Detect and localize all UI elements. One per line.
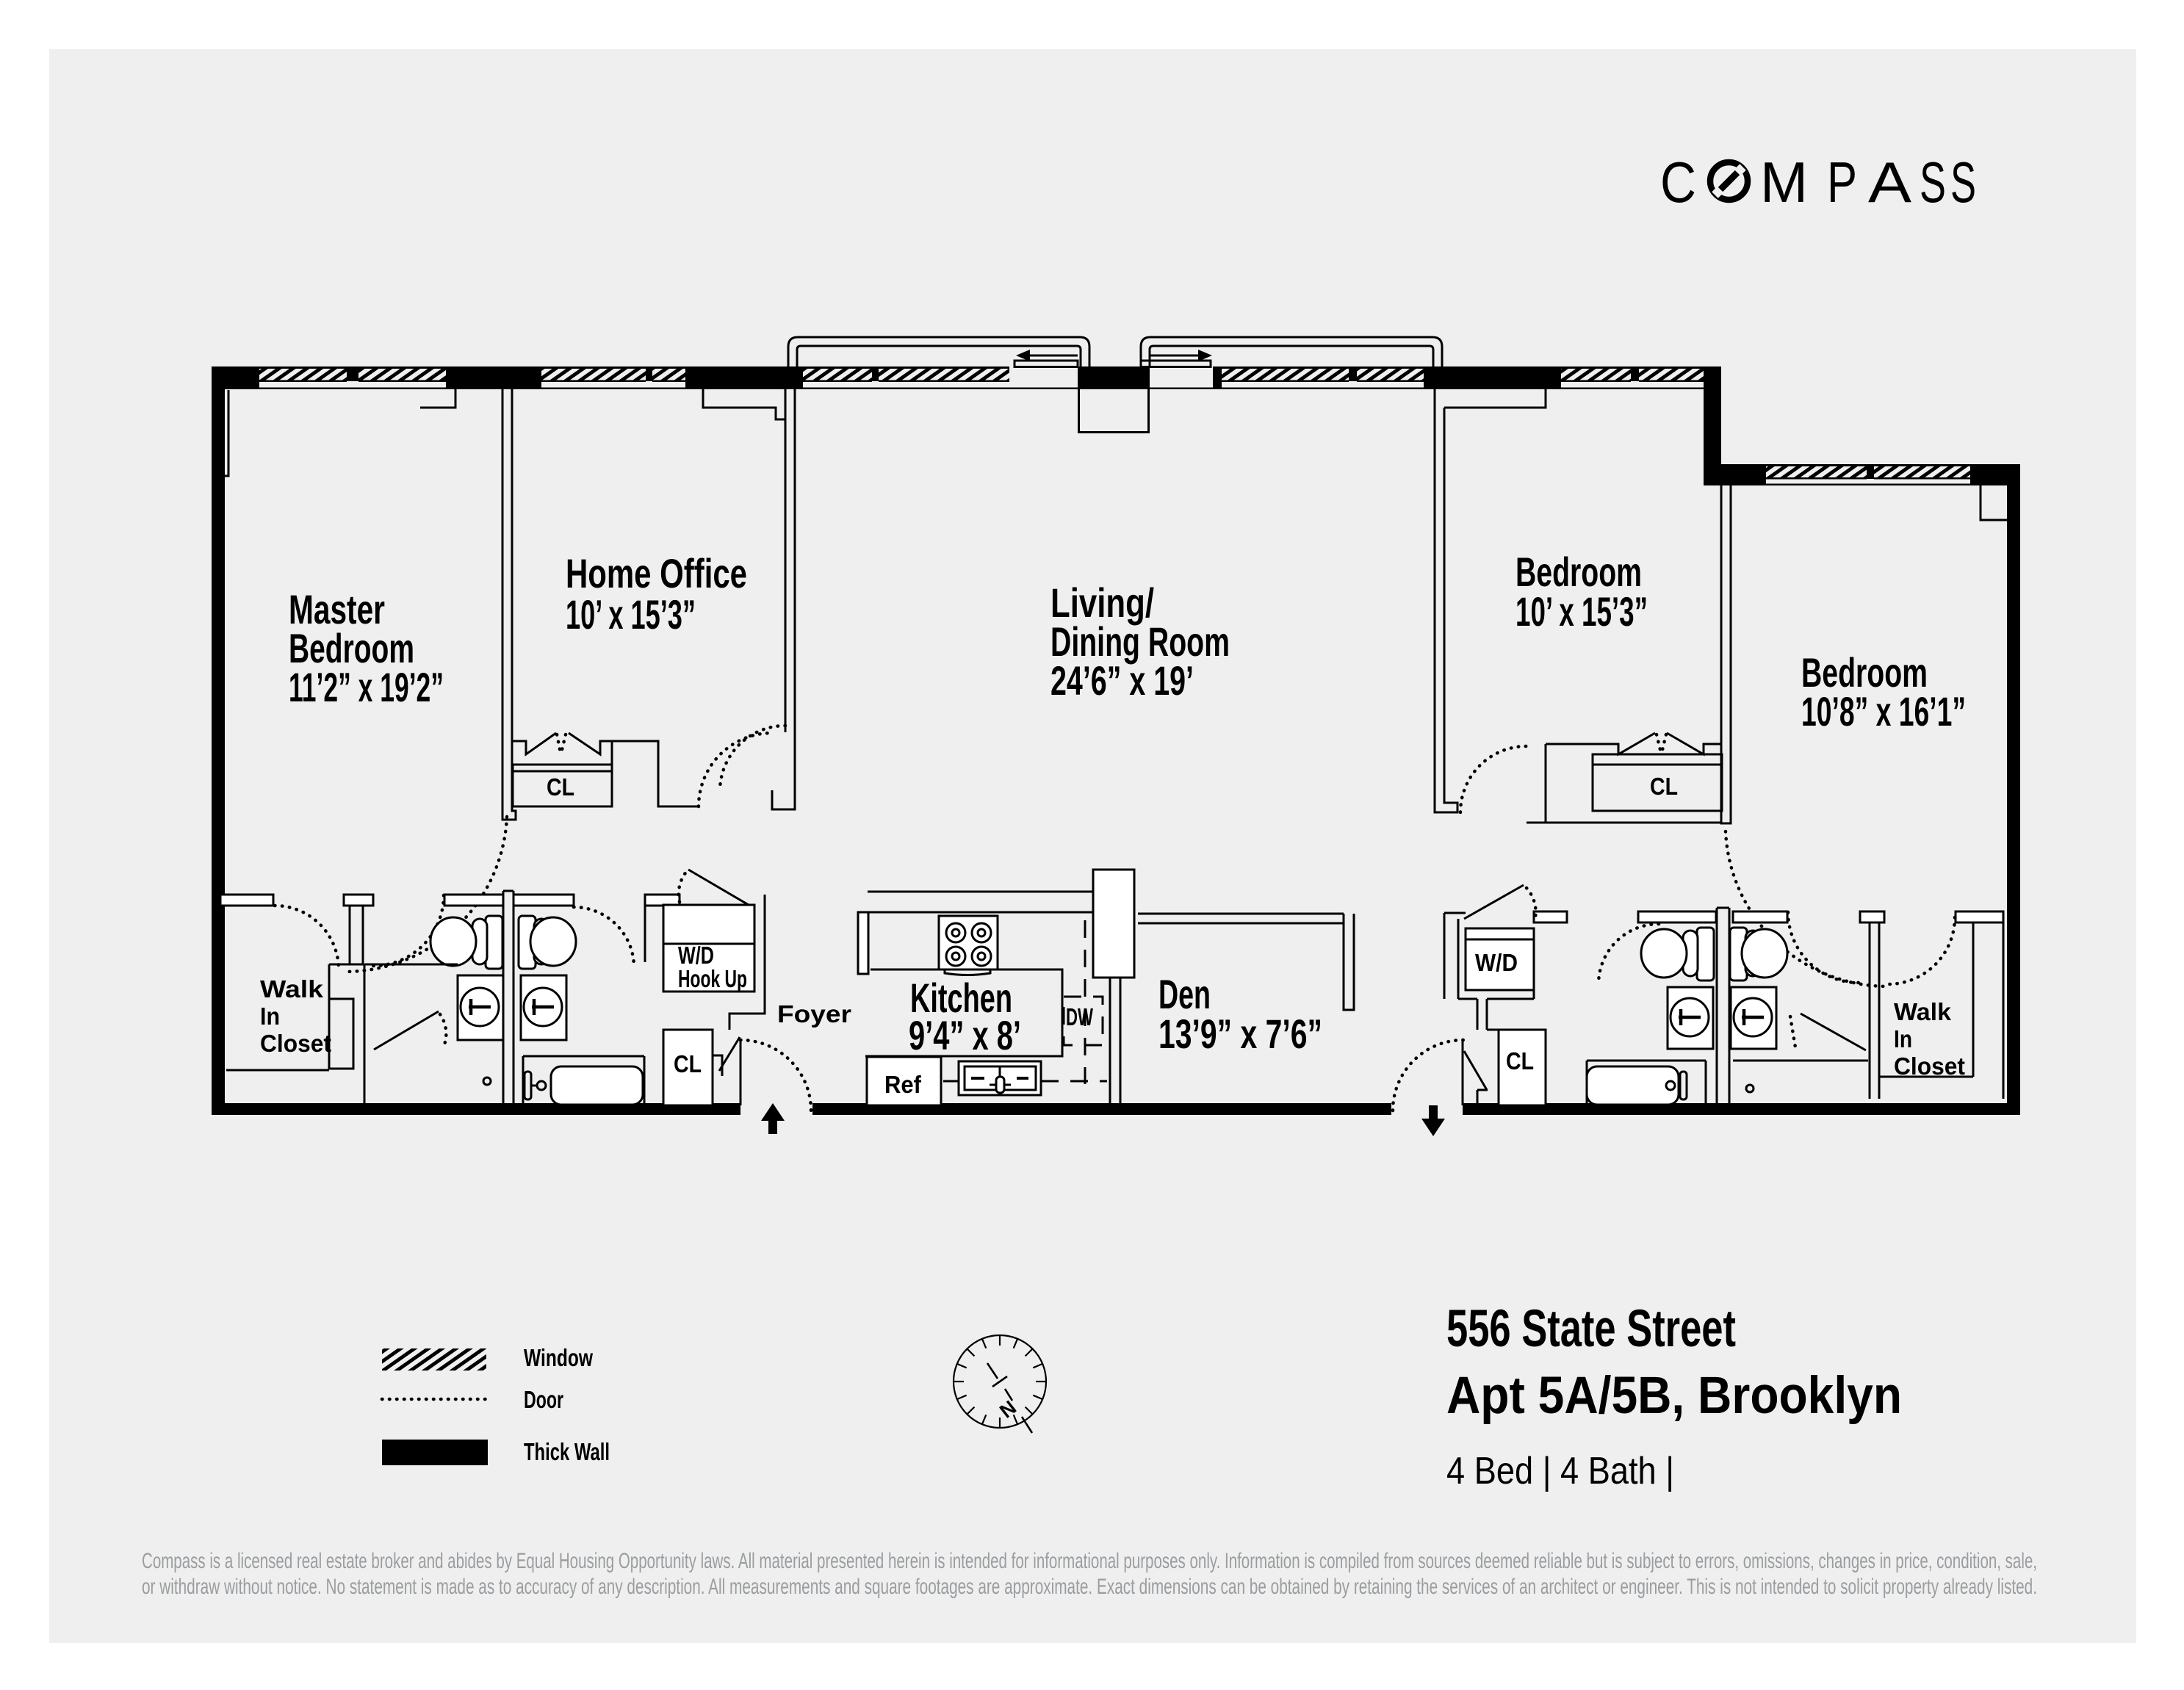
svg-text:S: S <box>1950 150 1976 214</box>
svg-text:Ref: Ref <box>884 1071 922 1098</box>
svg-text:CL: CL <box>1650 773 1678 800</box>
svg-text:S: S <box>1920 150 1946 214</box>
svg-text:11’2” x 19’2”: 11’2” x 19’2” <box>289 664 444 710</box>
svg-text:Door: Door <box>524 1386 563 1413</box>
svg-text:In: In <box>260 1003 280 1030</box>
svg-text:CL: CL <box>674 1050 702 1077</box>
svg-text:Home Office: Home Office <box>566 550 747 596</box>
svg-text:10’ x 15’3”: 10’ x 15’3” <box>1516 588 1648 635</box>
svg-text:Compass is a licensed real est: Compass is a licensed real estate broker… <box>142 1549 2037 1573</box>
svg-text:In: In <box>1894 1025 1912 1052</box>
svg-text:W/D: W/D <box>1475 949 1518 976</box>
svg-text:P: P <box>1827 150 1857 214</box>
svg-text:M: M <box>1760 150 1808 214</box>
svg-text:Closet: Closet <box>1894 1052 1965 1080</box>
svg-text:Walk: Walk <box>260 975 324 1003</box>
svg-text:CL: CL <box>547 773 574 801</box>
svg-text:A: A <box>1868 150 1911 214</box>
svg-text:9’4” x 8’: 9’4” x 8’ <box>909 1012 1021 1058</box>
svg-text:10’ x 15’3”: 10’ x 15’3” <box>566 591 696 638</box>
svg-text:10’8” x 16’1”: 10’8” x 16’1” <box>1801 688 1966 734</box>
svg-text:DW: DW <box>1066 1003 1094 1030</box>
svg-text:Hook Up: Hook Up <box>678 965 747 992</box>
svg-text:Closet: Closet <box>260 1030 331 1057</box>
svg-text:4 Bed | 4 Bath |: 4 Bed | 4 Bath | <box>1446 1450 1674 1492</box>
svg-text:C: C <box>1660 150 1696 214</box>
svg-text:Window: Window <box>524 1344 593 1371</box>
svg-text:or withdraw without notice. No: or withdraw without notice. No statement… <box>142 1575 2037 1599</box>
svg-text:13’9” x 7’6”: 13’9” x 7’6” <box>1158 1011 1322 1057</box>
svg-text:Walk: Walk <box>1894 998 1952 1025</box>
svg-text:Foyer: Foyer <box>777 1000 851 1028</box>
svg-text:CL: CL <box>1506 1047 1534 1075</box>
svg-text:Apt 5A/5B, Brooklyn: Apt 5A/5B, Brooklyn <box>1446 1367 1902 1425</box>
svg-text:24’6” x 19’: 24’6” x 19’ <box>1050 657 1194 704</box>
svg-text:556 State Street: 556 State Street <box>1446 1300 1736 1358</box>
svg-text:Thick Wall: Thick Wall <box>524 1438 610 1465</box>
